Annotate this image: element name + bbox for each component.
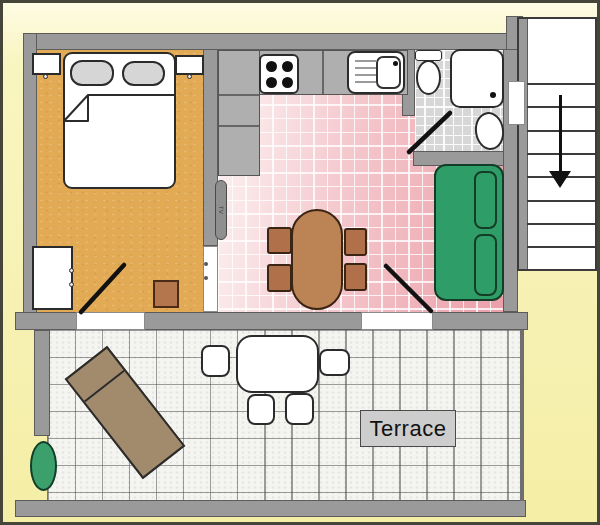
pillow-left (70, 60, 114, 86)
dining-chair (344, 228, 367, 256)
pillow-right (122, 61, 165, 86)
kitchen-cabinet-column (218, 50, 260, 176)
nightstand-right (175, 55, 204, 75)
dining-table (291, 209, 343, 310)
stove-burner (266, 61, 277, 72)
floor-plan: TV Terrace (0, 0, 600, 525)
sofa-cushion (474, 234, 497, 296)
stair-landing-opening (508, 81, 525, 125)
cabinet-divider (219, 94, 259, 96)
shower (450, 49, 504, 108)
terrace-left-wall (34, 330, 50, 436)
staircase (517, 17, 597, 271)
top-wall (23, 33, 519, 50)
dining-chair (267, 264, 292, 292)
dining-chair (344, 263, 367, 291)
stove (259, 54, 299, 94)
kitchen-sink (347, 51, 405, 94)
terrace-right-edge (520, 330, 524, 501)
wardrobe-knob (69, 282, 74, 287)
stove-burner (282, 61, 293, 72)
terrace-chair (247, 394, 275, 425)
wardrobe (32, 246, 73, 310)
terrace-label-box: Terrace (360, 410, 456, 447)
sink-drainboard-line (355, 67, 376, 69)
sink-drainboard-line (355, 60, 376, 62)
door-bedroom-terrace-opening (76, 312, 145, 330)
terrace-table (236, 335, 319, 393)
tv-label: TV (218, 206, 224, 214)
doorway-hinge-dot (204, 262, 208, 266)
shower-drain (490, 92, 496, 98)
terrace-chair (319, 349, 350, 376)
door-living-terrace-opening (361, 312, 433, 330)
wardrobe-knob (69, 268, 74, 273)
terrace-label: Terrace (370, 416, 447, 442)
terrace-chair (201, 345, 230, 377)
counter-divider (322, 51, 324, 94)
cabinet-divider (219, 125, 259, 127)
stove-burner (266, 77, 277, 88)
sink-drainboard-line (355, 81, 376, 83)
nightstand-left-knob (43, 74, 48, 79)
sink-drainboard-line (355, 74, 376, 76)
terrace-chair (285, 393, 314, 425)
doorway-hinge-dot (204, 276, 208, 280)
dining-chair (267, 227, 292, 254)
nightstand-right-knob (187, 74, 192, 79)
bedroom-stool (153, 280, 179, 308)
tv: TV (215, 180, 227, 240)
sink-faucet-dot (393, 61, 398, 66)
sofa-cushion (474, 171, 497, 229)
stove-burner (282, 77, 293, 88)
sun-lounger-backrest-line (84, 370, 125, 402)
toilet-bowl (416, 60, 441, 95)
stairs-down-arrow (559, 95, 562, 173)
nightstand-left (32, 53, 61, 75)
stairs-down-arrowhead (549, 171, 571, 188)
plant (30, 441, 57, 491)
terrace-bottom-wall (15, 500, 526, 517)
